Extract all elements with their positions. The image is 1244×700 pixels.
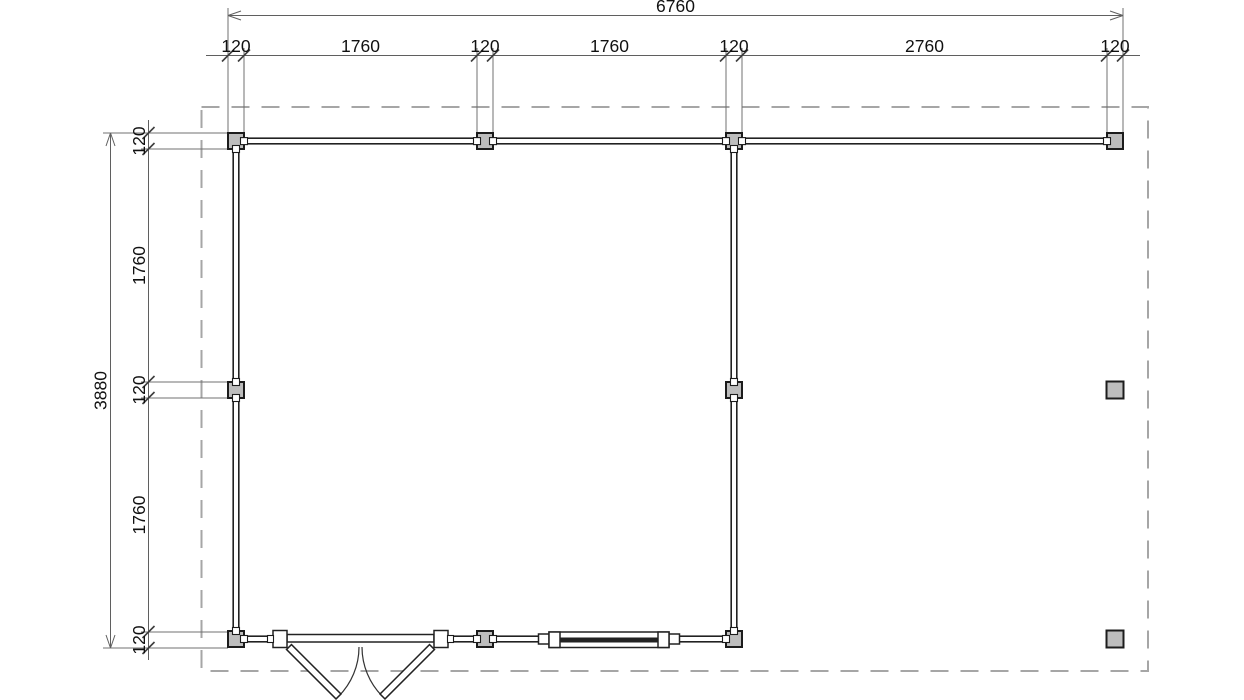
- post-notch: [233, 628, 240, 635]
- dim-label-top-seg: 120: [470, 36, 499, 56]
- window-sill-block: [669, 634, 680, 644]
- door-jamb-notch: [268, 636, 274, 643]
- dim-label-top-seg: 1760: [590, 36, 629, 56]
- dim-label-left-seg: 120: [129, 126, 149, 155]
- dim-label-left-seg: 1760: [129, 246, 149, 285]
- door-jamb-notch: [448, 636, 454, 643]
- wall-top-segment: [244, 138, 477, 144]
- post-notch: [723, 138, 730, 145]
- wall-top-segment: [493, 138, 726, 144]
- post-notch: [474, 636, 481, 643]
- dim-label-left-seg: 120: [129, 375, 149, 404]
- post-free-bottom-right: [1107, 631, 1124, 648]
- dim-label-left-seg: 120: [129, 625, 149, 654]
- post-notch: [731, 628, 738, 635]
- wall-left-segment: [233, 398, 239, 631]
- dim-label-top-total: 6760: [656, 0, 695, 16]
- dimension-top-segments: 120 1760 120 1760 120 2760 120: [206, 36, 1140, 62]
- walls: [233, 138, 1107, 642]
- post-notch: [233, 146, 240, 153]
- roof-overhang-outline: [202, 107, 1149, 671]
- dim-label-top-seg: 1760: [341, 36, 380, 56]
- post-notch: [731, 146, 738, 153]
- dim-label-left-seg: 1760: [129, 495, 149, 534]
- window-end-cap: [549, 632, 560, 648]
- dimension-extension-lines-top: [228, 8, 1123, 133]
- dim-label-top-seg: 2760: [905, 36, 944, 56]
- door-jamb-left: [273, 631, 287, 648]
- wall-top-beam: [742, 138, 1107, 144]
- post-notch: [1104, 138, 1111, 145]
- posts: [228, 133, 1124, 648]
- post-notch: [490, 636, 497, 643]
- dimension-left-segments: 120 1760 120 1760 120: [129, 120, 155, 660]
- dim-label-top-seg: 120: [1100, 36, 1129, 56]
- post-notch: [731, 379, 738, 386]
- wall-partition-segment: [731, 149, 737, 382]
- dim-label-top-seg: 120: [719, 36, 748, 56]
- window-end-cap: [658, 632, 669, 648]
- post-notch: [731, 395, 738, 402]
- post-notch: [739, 138, 746, 145]
- dim-label-left-total: 3880: [91, 371, 111, 410]
- window: [539, 632, 680, 648]
- wall-partition-segment: [731, 398, 737, 631]
- post-free-mid-right: [1107, 382, 1124, 399]
- post-notch: [241, 138, 248, 145]
- post-notch: [723, 636, 730, 643]
- dimension-extension-lines-left: [103, 133, 228, 648]
- dim-label-top-seg: 120: [221, 36, 250, 56]
- post-notch: [490, 138, 497, 145]
- window-sill-block: [539, 634, 550, 644]
- post-notch: [233, 379, 240, 386]
- floor-plan-page: 6760 120 1760 120 1760 120 2760 120 3880: [0, 0, 1244, 700]
- post-notch: [233, 395, 240, 402]
- floor-plan-canvas: 6760 120 1760 120 1760 120 2760 120 3880: [0, 0, 1244, 700]
- post-notch: [241, 636, 248, 643]
- wall-left-segment: [233, 149, 239, 382]
- dimension-left-total: 3880: [91, 133, 116, 648]
- window-glazing: [560, 638, 658, 643]
- post-notch: [474, 138, 481, 145]
- double-door: [268, 631, 454, 699]
- door-header: [287, 635, 434, 643]
- door-jamb-right: [434, 631, 448, 648]
- dimension-top-total: 6760: [228, 0, 1123, 20]
